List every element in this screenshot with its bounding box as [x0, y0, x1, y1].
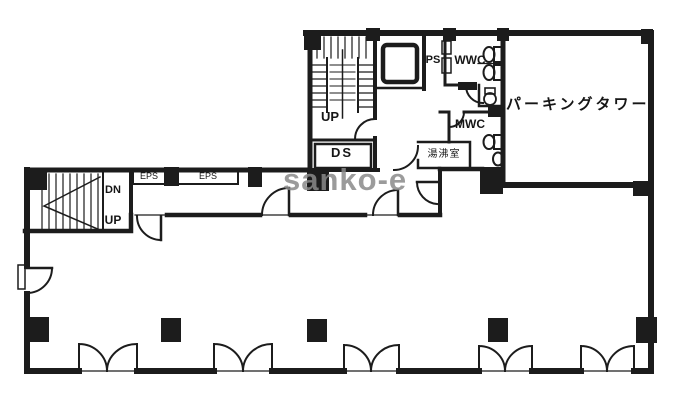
- column: [161, 318, 181, 342]
- parking-tower-label: パーキングタワー: [506, 97, 651, 112]
- watermark: sanko-e: [283, 164, 407, 195]
- outer-walls: [27, 33, 651, 371]
- left-staircase: [42, 170, 103, 231]
- hot-water-room-label: 湯沸室: [418, 150, 470, 160]
- womens-wc-label: WWC: [451, 54, 489, 66]
- ps-shaft-label: PS: [420, 55, 446, 66]
- column: [307, 319, 327, 342]
- elevator: [383, 45, 417, 82]
- door-casing: [18, 265, 25, 289]
- column: [27, 317, 49, 342]
- floor-plan: DN UP EPS EPS UP DS PS WWC MWC 湯沸室 パーキング…: [0, 0, 680, 400]
- stair-down-label: DN: [100, 185, 126, 196]
- mens-wc-label: MWC: [451, 118, 489, 130]
- stair-up-center-label: UP: [312, 110, 348, 123]
- floor-plan-drawing: [0, 0, 680, 400]
- door-arcs: [18, 86, 483, 293]
- stair-up-left-label: UP: [100, 214, 126, 226]
- entrance-double-doors: [79, 344, 634, 371]
- wc-bowl: [484, 93, 496, 105]
- column: [636, 317, 657, 343]
- eps-shaft-2-label: EPS: [178, 172, 238, 181]
- column: [488, 318, 508, 342]
- ds-shaft-label: DS: [318, 146, 366, 159]
- eps-shaft-1-label: EPS: [133, 172, 165, 181]
